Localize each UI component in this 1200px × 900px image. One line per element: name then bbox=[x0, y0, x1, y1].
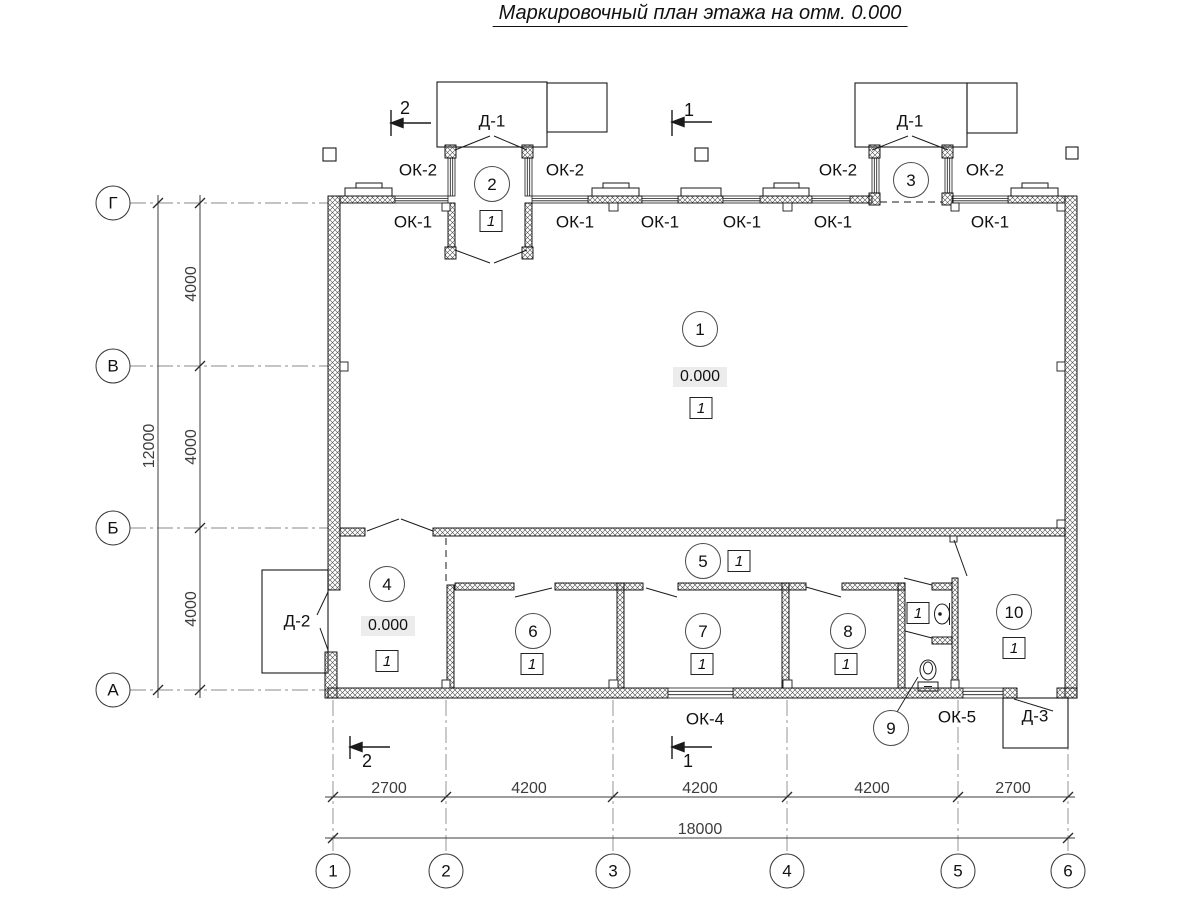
axis-number-6: 6 bbox=[1051, 854, 1086, 889]
axis-number-1: 1 bbox=[316, 854, 351, 889]
room-circle-5: 5 bbox=[685, 543, 721, 579]
window-label-ok2-3: ОК-2 bbox=[819, 162, 857, 179]
door-label-d2: Д-2 bbox=[284, 613, 311, 630]
section-mark-2-bottom: 2 bbox=[362, 752, 372, 770]
room-circle-4: 4 bbox=[369, 566, 405, 602]
room-circle-6: 6 bbox=[515, 613, 551, 649]
section-mark-1-top: 1 bbox=[684, 101, 694, 119]
window-label-ok1-4: ОК-1 bbox=[723, 214, 761, 231]
window-label-ok1-3: ОК-1 bbox=[641, 214, 679, 231]
room-circle-10: 10 bbox=[996, 594, 1032, 630]
window-label-ok2-2: ОК-2 bbox=[546, 162, 584, 179]
window-label-ok1-2: ОК-1 bbox=[556, 214, 594, 231]
floor-box-room4: 1 bbox=[376, 650, 399, 672]
axis-letter-b: Б bbox=[96, 511, 131, 546]
window-label-ok5: ОК-5 bbox=[938, 709, 976, 726]
section-mark-2-top: 2 bbox=[400, 99, 410, 117]
dim-12000: 12000 bbox=[142, 424, 158, 469]
dim-18000: 18000 bbox=[678, 822, 723, 838]
door-label-d3: Д-3 bbox=[1022, 708, 1049, 725]
room-circle-8: 8 bbox=[830, 613, 866, 649]
window-label-ok1-1: ОК-1 bbox=[394, 214, 432, 231]
floor-plan-page: Маркировочный план этажа на отм. 0.000 Г… bbox=[0, 0, 1200, 900]
dim-2700-left: 2700 bbox=[371, 781, 407, 797]
door-label-d1-right: Д-1 bbox=[897, 113, 924, 130]
dim-4000-mid: 4000 bbox=[184, 429, 200, 465]
floor-box-room8: 1 bbox=[835, 653, 858, 675]
window-label-ok2-4: ОК-2 bbox=[966, 162, 1004, 179]
dim-4200-3: 4200 bbox=[854, 781, 890, 797]
window-label-ok1-5: ОК-1 bbox=[814, 214, 852, 231]
axis-number-4: 4 bbox=[770, 854, 805, 889]
axis-number-2: 2 bbox=[429, 854, 464, 889]
room-circle-9: 9 bbox=[873, 710, 909, 746]
room-circle-3: 3 bbox=[893, 162, 929, 198]
floor-box-room1: 1 bbox=[690, 397, 713, 419]
section-mark-1-bottom: 1 bbox=[683, 752, 693, 770]
elevation-room4: 0.000 bbox=[361, 616, 415, 636]
dim-2700-right: 2700 bbox=[995, 781, 1031, 797]
room-circle-2: 2 bbox=[474, 166, 510, 202]
axis-number-5: 5 bbox=[941, 854, 976, 889]
dim-4200-1: 4200 bbox=[511, 781, 547, 797]
window-label-ok2-1: ОК-2 bbox=[399, 162, 437, 179]
dim-4200-2: 4200 bbox=[682, 781, 718, 797]
axis-letter-g: Г bbox=[96, 186, 131, 221]
window-label-ok4: ОК-4 bbox=[686, 711, 724, 728]
room-circle-7: 7 bbox=[685, 613, 721, 649]
axis-number-3: 3 bbox=[596, 854, 631, 889]
axis-letter-v: В bbox=[96, 349, 131, 384]
floor-box-room5: 1 bbox=[728, 550, 751, 572]
floor-box-room10: 1 bbox=[1003, 637, 1026, 659]
floor-box-room7: 1 bbox=[691, 653, 714, 675]
door-label-d1-left: Д-1 bbox=[479, 113, 506, 130]
dim-4000-top: 4000 bbox=[184, 266, 200, 302]
axis-letter-a: А bbox=[96, 673, 131, 708]
window-label-ok1-6: ОК-1 bbox=[971, 214, 1009, 231]
floor-box-room2: 1 bbox=[480, 210, 503, 232]
labels-layer: ГВБА123456123456789101111111110.0000.000… bbox=[0, 0, 1200, 900]
dim-4000-bottom: 4000 bbox=[184, 591, 200, 627]
elevation-room1: 0.000 bbox=[673, 367, 727, 387]
room-circle-1: 1 bbox=[682, 311, 718, 347]
floor-box-room6: 1 bbox=[521, 653, 544, 675]
floor-box-washroom: 1 bbox=[907, 602, 930, 624]
